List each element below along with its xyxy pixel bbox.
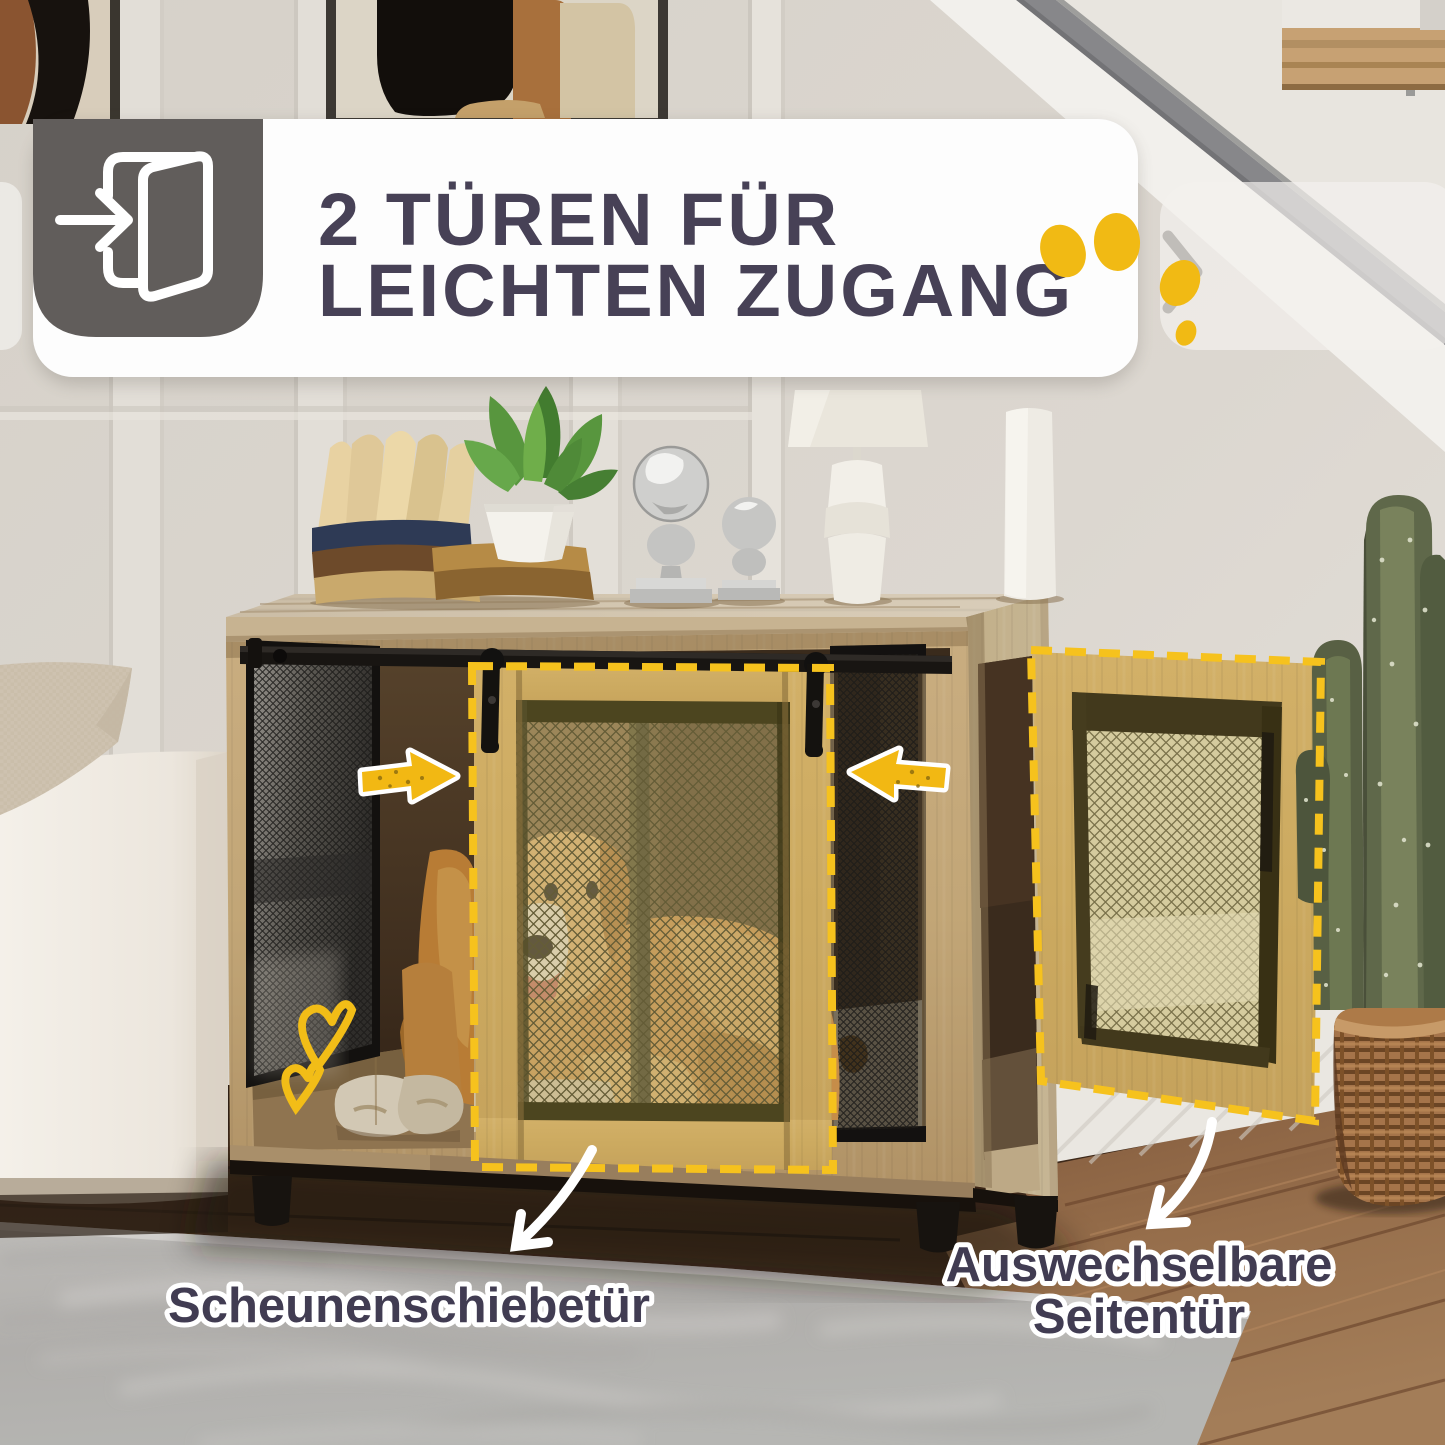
svg-text:Seitentür: Seitentür	[1033, 1290, 1245, 1344]
svg-text:Auswechselbare: Auswechselbare	[946, 1238, 1333, 1292]
svg-text:LEICHTEN ZUGANG: LEICHTEN ZUGANG	[318, 249, 1074, 332]
svg-text:Scheunenschiebetür: Scheunenschiebetür	[168, 1279, 650, 1333]
